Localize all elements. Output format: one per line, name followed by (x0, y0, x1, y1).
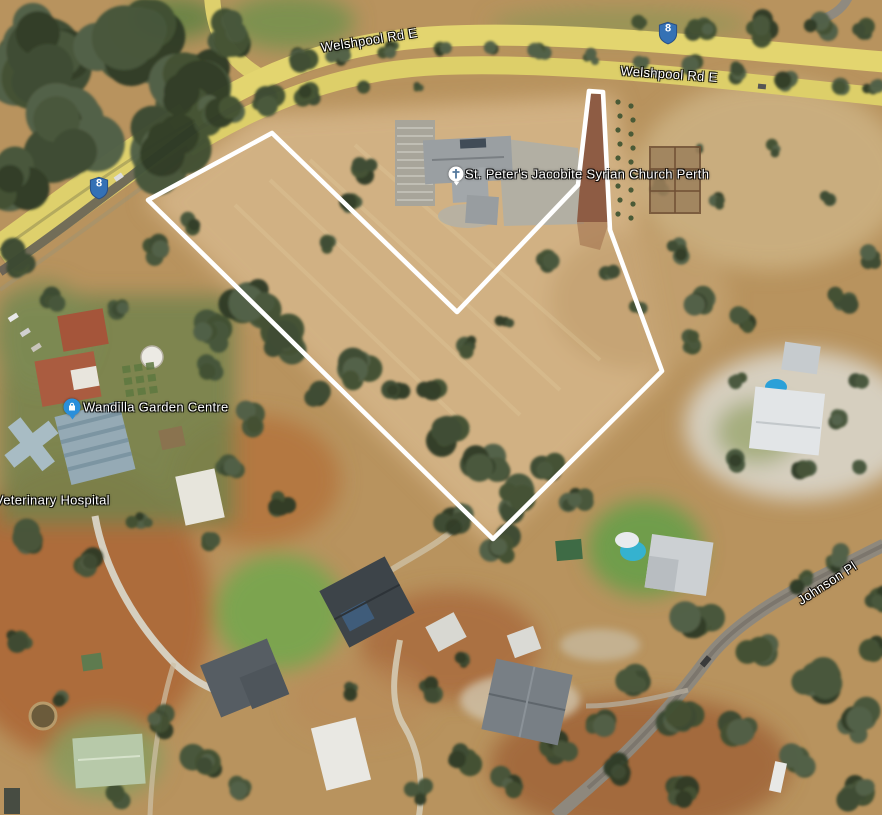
circular-garden (30, 703, 56, 729)
building-under-construction (650, 147, 700, 213)
route-number: 8 (89, 178, 109, 190)
satellite-map[interactable]: 8 8 Welshpool Rd E Welshpool Rd E Johnso… (0, 0, 882, 815)
aerial-imagery (0, 0, 882, 815)
church-cross-icon[interactable] (449, 167, 464, 182)
shopping-bag-icon[interactable] (64, 399, 81, 416)
small-green-shed (81, 653, 103, 672)
green-shed (555, 539, 583, 561)
route-shield-8-east: 8 (658, 22, 678, 45)
pale-green-roof-house (72, 734, 145, 789)
route-number: 8 (658, 23, 678, 35)
route-shield-8-west: 8 (89, 177, 109, 200)
garden-beds (122, 362, 158, 397)
